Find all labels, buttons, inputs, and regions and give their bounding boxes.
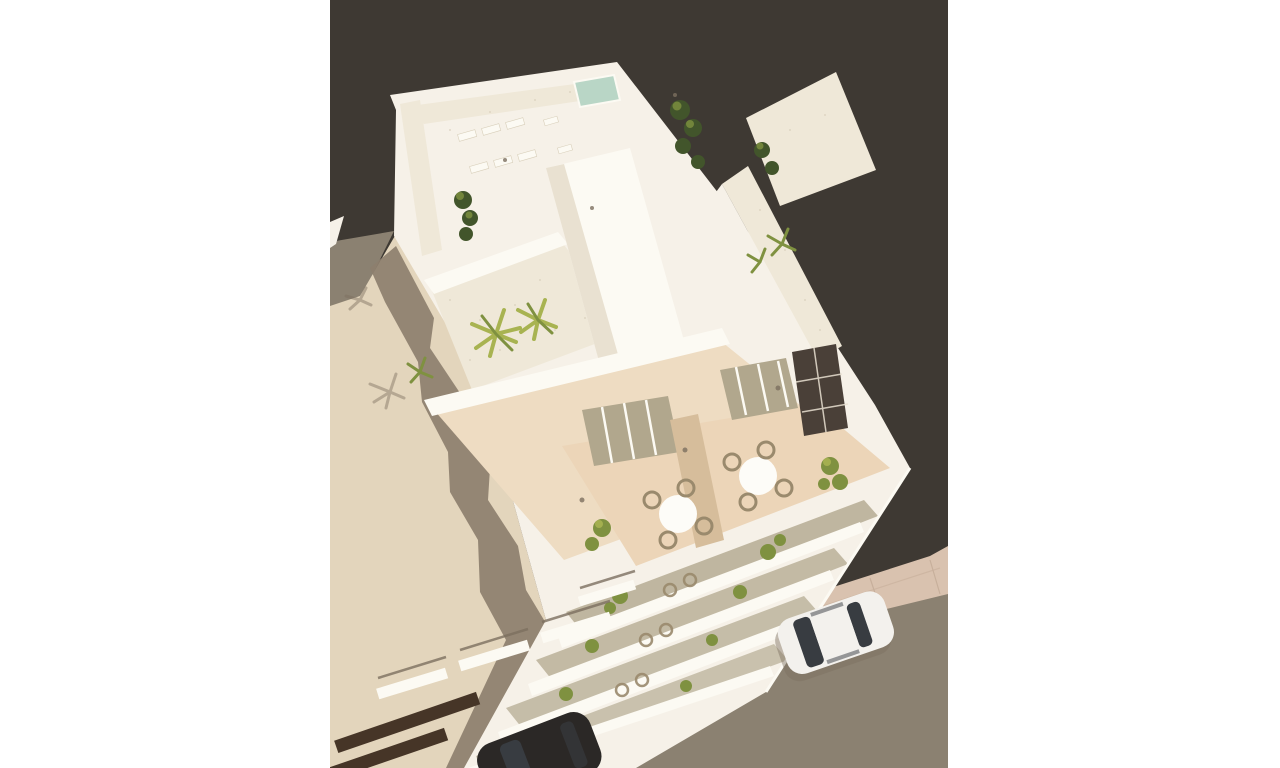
architectural-render	[330, 0, 948, 768]
listing-photo-viewer	[0, 0, 1280, 768]
